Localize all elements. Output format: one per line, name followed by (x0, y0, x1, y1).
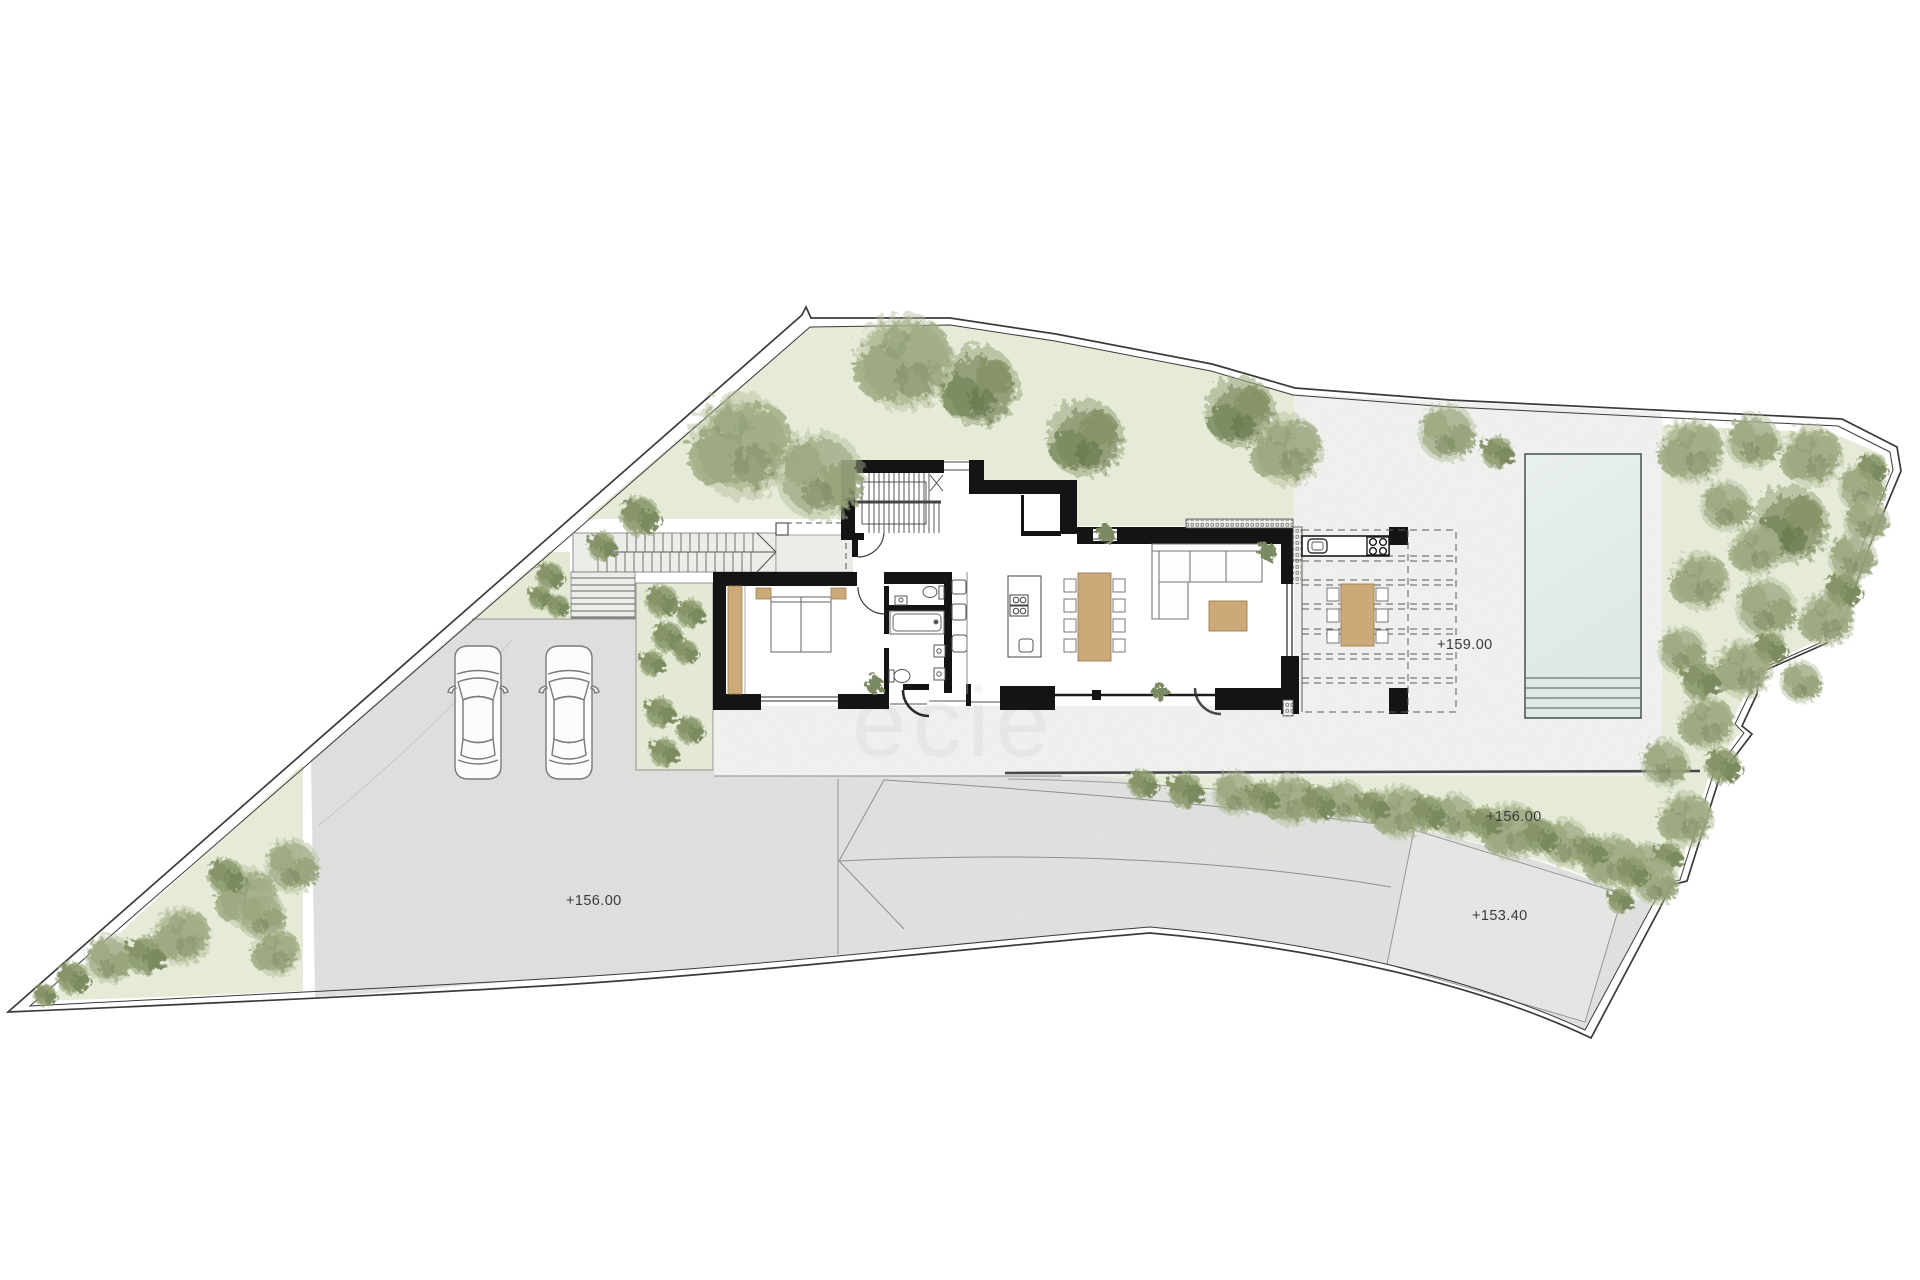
svg-text:+153.40: +153.40 (1472, 908, 1528, 924)
svg-text:+159.00: +159.00 (1437, 637, 1493, 653)
svg-text:+156.00: +156.00 (1486, 809, 1542, 825)
svg-text:+156.00: +156.00 (566, 893, 622, 909)
